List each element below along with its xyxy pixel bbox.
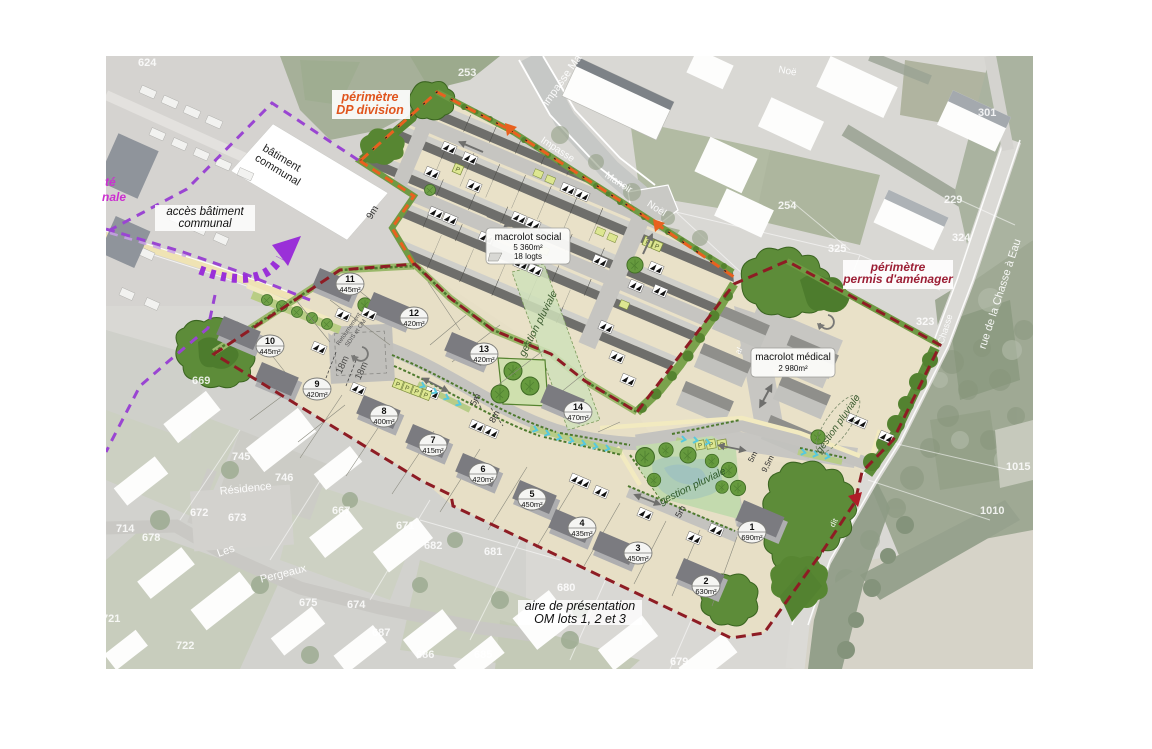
- svg-text:périmètre: périmètre: [341, 90, 399, 104]
- svg-text:permis d'aménager: permis d'aménager: [842, 272, 954, 286]
- svg-text:8: 8: [381, 406, 386, 416]
- svg-text:681: 681: [484, 546, 502, 558]
- svg-text:679: 679: [670, 656, 688, 668]
- svg-text:450m²: 450m²: [521, 500, 543, 509]
- svg-text:253: 253: [458, 67, 476, 79]
- svg-text:686: 686: [416, 649, 434, 661]
- svg-text:445m²: 445m²: [339, 285, 361, 294]
- svg-text:té: té: [105, 175, 116, 189]
- svg-text:9: 9: [314, 379, 319, 389]
- svg-text:254: 254: [778, 200, 797, 212]
- svg-text:630m²: 630m²: [695, 587, 717, 596]
- svg-text:5 360m²: 5 360m²: [513, 243, 543, 252]
- svg-text:669: 669: [192, 375, 210, 387]
- svg-text:450m²: 450m²: [627, 554, 649, 563]
- svg-text:420m²: 420m²: [472, 475, 494, 484]
- svg-text:323: 323: [916, 316, 934, 328]
- svg-text:accès bâtiment: accès bâtiment: [166, 206, 244, 218]
- svg-text:12: 12: [409, 308, 419, 318]
- svg-text:673: 673: [228, 512, 246, 524]
- svg-text:667: 667: [332, 505, 350, 517]
- svg-text:DP division: DP division: [336, 103, 404, 117]
- svg-text:746: 746: [275, 472, 293, 484]
- svg-text:3: 3: [635, 543, 640, 553]
- svg-text:2 980m²: 2 980m²: [778, 364, 808, 373]
- svg-text:2: 2: [703, 576, 708, 586]
- svg-text:415m²: 415m²: [422, 446, 444, 455]
- svg-text:721: 721: [102, 613, 120, 625]
- svg-text:420m²: 420m²: [473, 355, 495, 364]
- svg-text:671: 671: [396, 520, 414, 532]
- svg-text:1: 1: [749, 522, 754, 532]
- svg-text:745: 745: [232, 451, 250, 463]
- svg-text:7: 7: [430, 435, 435, 445]
- svg-text:macrolot social: macrolot social: [495, 232, 562, 243]
- svg-text:5: 5: [529, 489, 534, 499]
- svg-text:4: 4: [579, 518, 584, 528]
- svg-text:687: 687: [372, 627, 390, 639]
- svg-text:680: 680: [557, 582, 575, 594]
- svg-text:aire de présentation: aire de présentation: [525, 599, 636, 613]
- svg-text:722: 722: [176, 640, 194, 652]
- svg-text:678: 678: [142, 532, 160, 544]
- svg-text:OM lots 1, 2 et 3: OM lots 1, 2 et 3: [534, 612, 626, 626]
- svg-text:420m²: 420m²: [306, 390, 328, 399]
- svg-text:470m²: 470m²: [567, 413, 589, 422]
- svg-text:674: 674: [347, 599, 366, 611]
- svg-text:301: 301: [978, 107, 996, 119]
- svg-text:1015: 1015: [1006, 461, 1030, 473]
- svg-text:1010: 1010: [980, 505, 1004, 517]
- svg-text:675: 675: [299, 597, 317, 609]
- svg-text:682: 682: [424, 540, 442, 552]
- svg-text:672: 672: [190, 507, 208, 519]
- svg-text:714: 714: [116, 523, 135, 535]
- svg-text:685: 685: [474, 649, 492, 661]
- svg-text:324: 324: [952, 232, 971, 244]
- svg-text:325: 325: [828, 243, 846, 255]
- svg-text:13: 13: [479, 344, 489, 354]
- svg-text:14: 14: [573, 402, 583, 412]
- svg-text:400m²: 400m²: [373, 417, 395, 426]
- svg-text:18 logts: 18 logts: [514, 252, 542, 261]
- svg-text:communal: communal: [178, 218, 231, 230]
- svg-text:420m²: 420m²: [403, 319, 425, 328]
- svg-text:229: 229: [944, 194, 962, 206]
- svg-text:11: 11: [345, 274, 355, 284]
- svg-text:10: 10: [265, 336, 275, 346]
- svg-text:6: 6: [480, 464, 485, 474]
- svg-text:nale: nale: [102, 190, 126, 204]
- svg-text:445m²: 445m²: [259, 347, 281, 356]
- svg-text:690m²: 690m²: [741, 533, 763, 542]
- svg-text:macrolot médical: macrolot médical: [755, 352, 831, 363]
- svg-text:624: 624: [138, 57, 157, 69]
- svg-text:435m²: 435m²: [571, 529, 593, 538]
